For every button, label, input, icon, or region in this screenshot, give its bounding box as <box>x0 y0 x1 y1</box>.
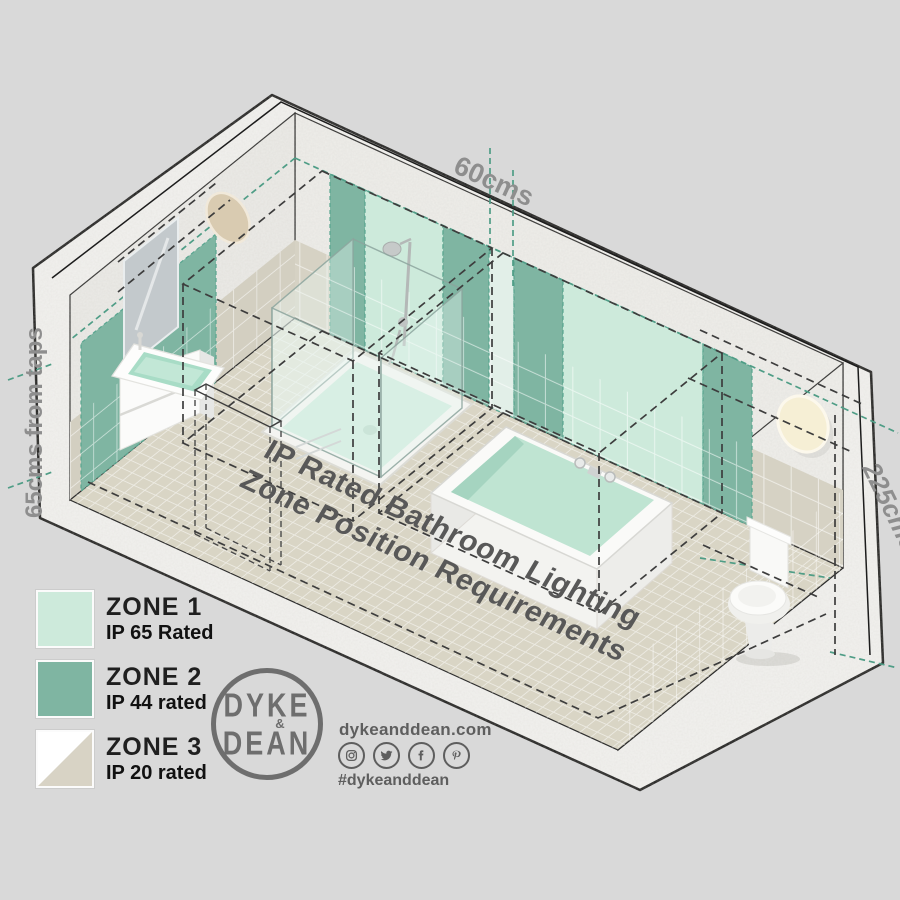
zone3-rating: IP 20 rated <box>106 761 207 785</box>
logo-text-bottom: DEAN <box>223 728 312 758</box>
hashtag-label: #dykeanddean <box>338 772 449 790</box>
dyke-and-dean-logo: DYKE & DEAN <box>211 668 323 780</box>
twitter-icon <box>373 742 400 769</box>
zone2-label: ZONE 2 <box>106 664 207 691</box>
zone2-rating: IP 44 rated <box>106 691 207 715</box>
infographic-canvas: 60cms 65cms from taps 225cms IP Rated Ba… <box>0 0 900 900</box>
facebook-icon <box>408 742 435 769</box>
zone1-swatch <box>36 590 94 648</box>
instagram-icon <box>338 742 365 769</box>
zone1-rating: IP 65 Rated <box>106 621 213 645</box>
legend-item-zone1: ZONE 1 IP 65 Rated <box>36 590 213 648</box>
zone1-label: ZONE 1 <box>106 594 213 621</box>
zone2-swatch <box>36 660 94 718</box>
legend-item-zone3: ZONE 3 IP 20 rated <box>36 730 207 788</box>
logo-text-top: DYKE <box>223 690 310 720</box>
legend-item-zone2: ZONE 2 IP 44 rated <box>36 660 207 718</box>
zone3-label: ZONE 3 <box>106 734 207 761</box>
social-icons-row <box>338 742 470 769</box>
dimension-label-65cms: 65cms from taps <box>21 327 48 518</box>
pinterest-icon <box>443 742 470 769</box>
zone3-swatch-triangle <box>38 732 92 786</box>
website-url: dykeanddean.com <box>339 720 492 740</box>
zone3-swatch <box>36 730 94 788</box>
